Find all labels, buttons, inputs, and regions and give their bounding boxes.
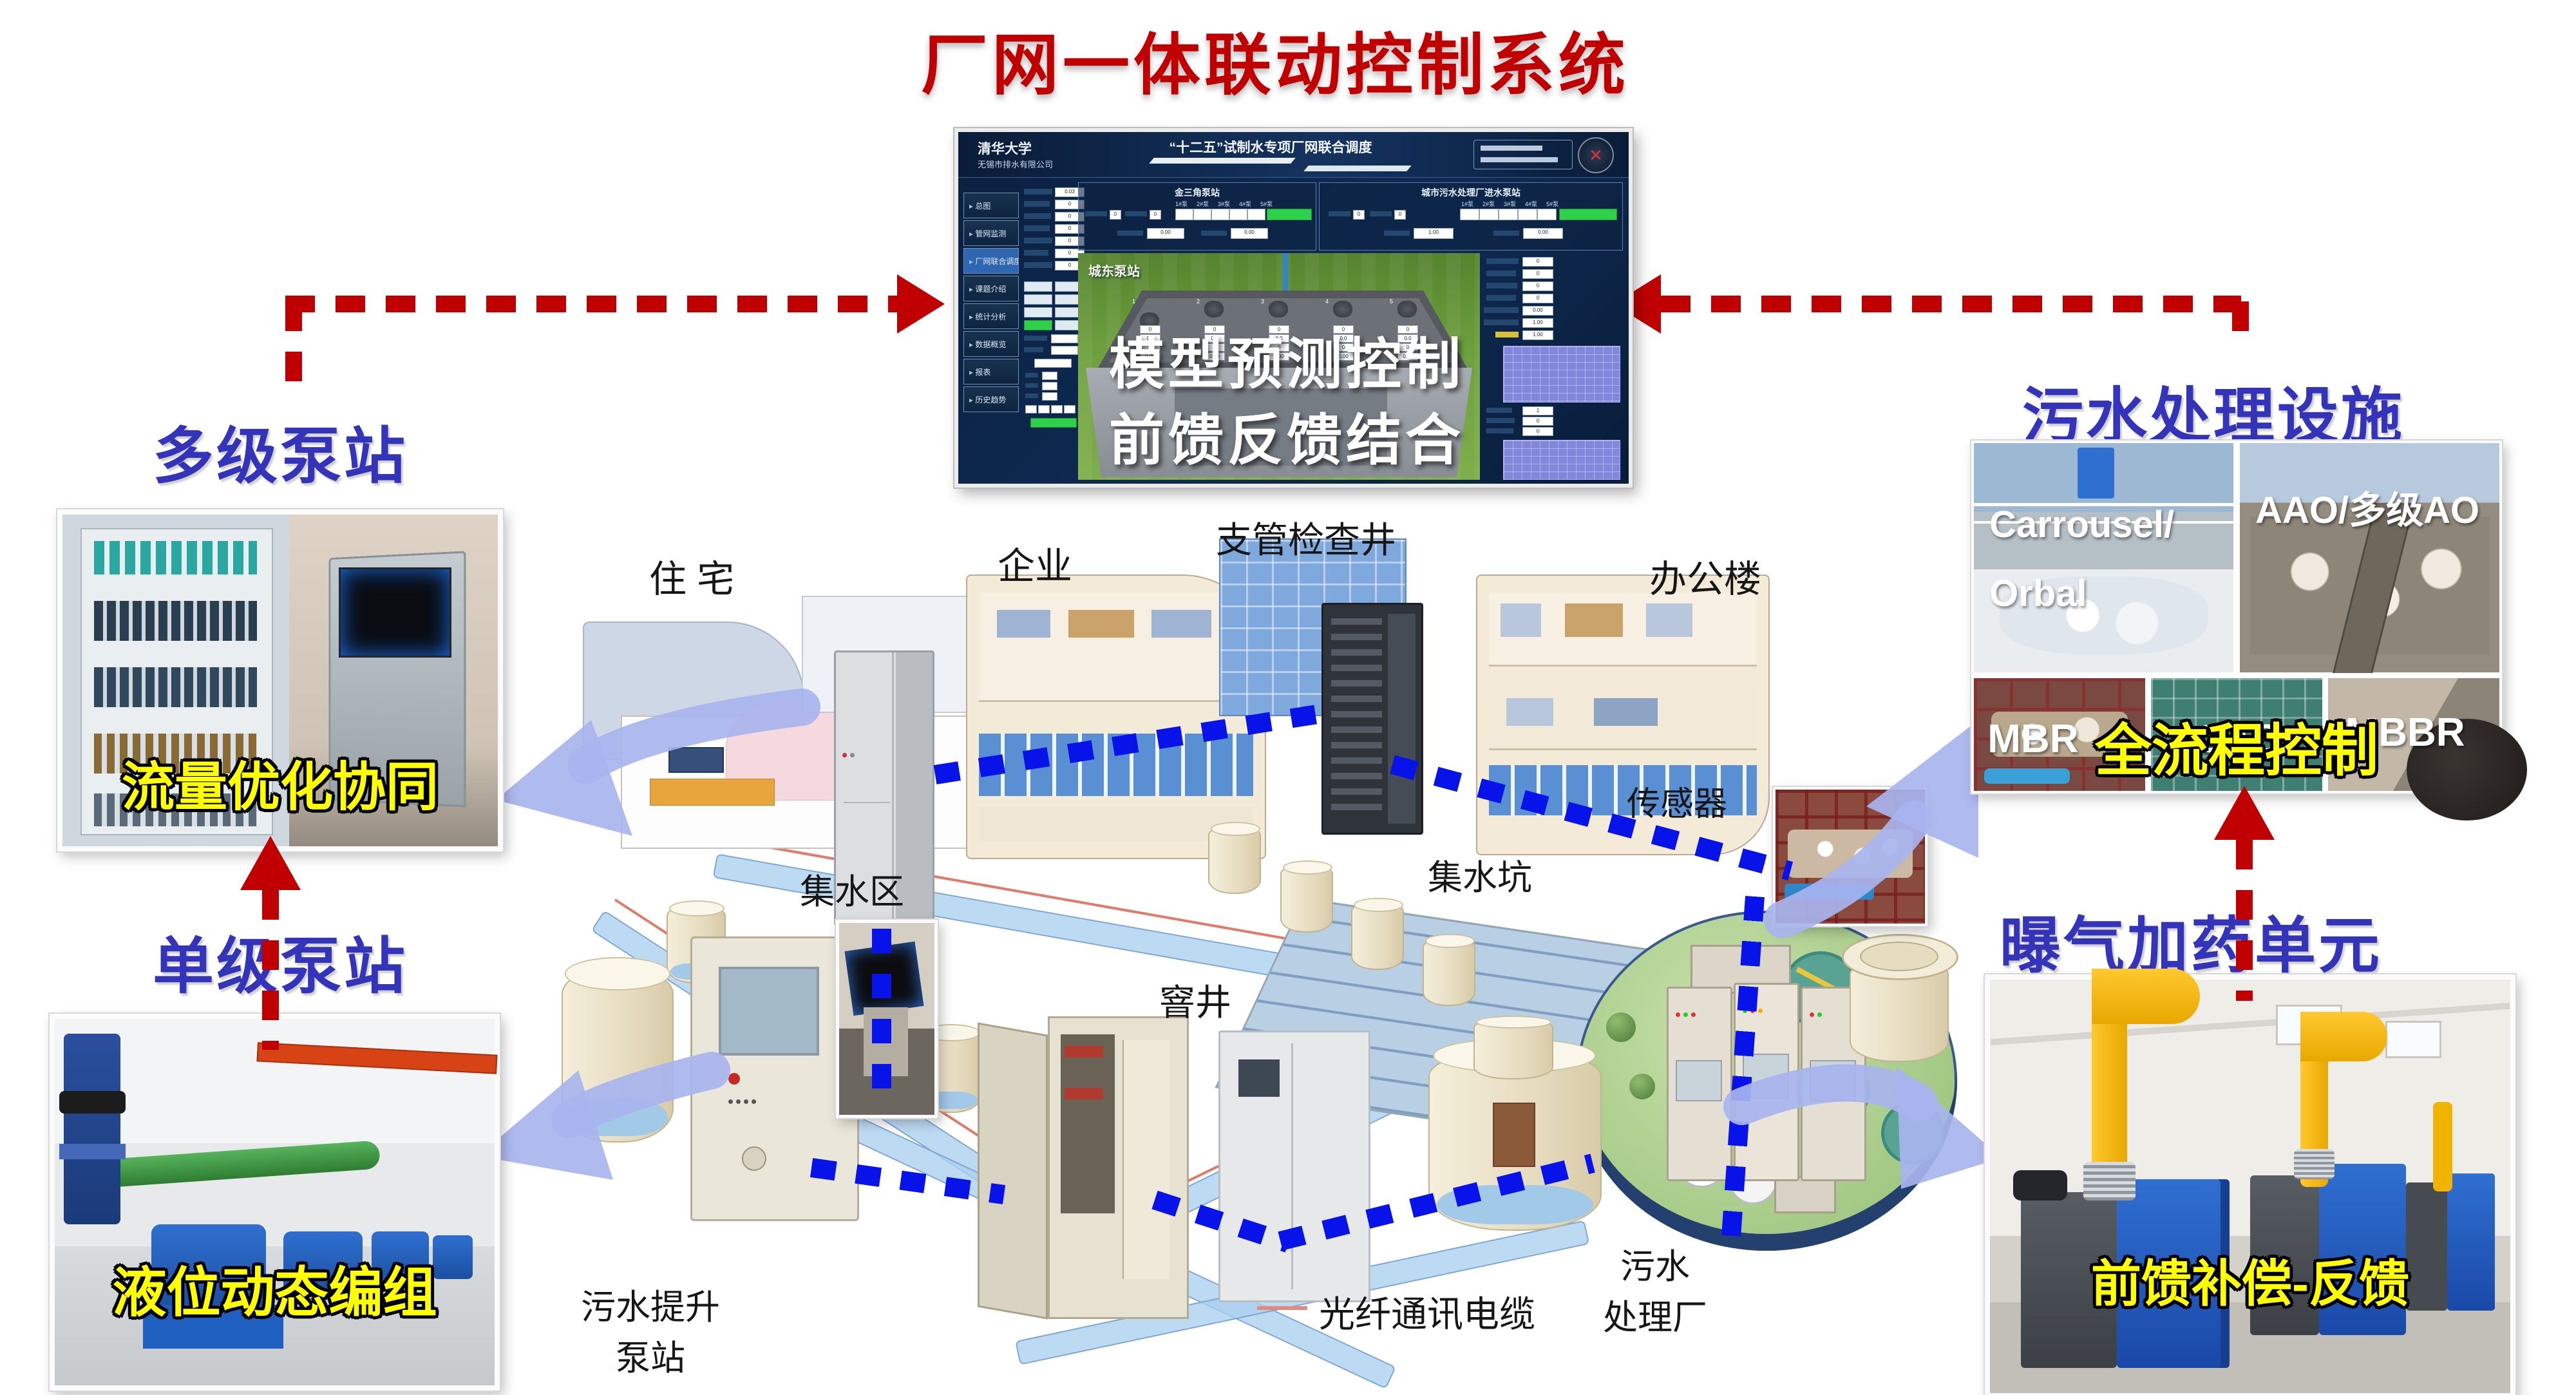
red-arrowhead-up bbox=[240, 836, 301, 890]
red-arrowhead-up bbox=[2214, 786, 2275, 840]
label-lift-station: 污水提升 泵站 bbox=[567, 1278, 734, 1380]
menu-item-data-overview[interactable]: 数据概览 bbox=[963, 331, 1019, 357]
heading-single-pump: 单级泵站 bbox=[113, 917, 448, 1005]
red-dashed-link bbox=[2236, 840, 2253, 1001]
heading-multi-pump: 多级泵站 bbox=[113, 407, 448, 495]
scada-banner: “十二五”试制水专项厂网联合调度 bbox=[1119, 137, 1422, 157]
scada-overlay-line1: 模型预测控制 bbox=[1061, 319, 1512, 399]
red-arrowhead-right bbox=[897, 274, 945, 334]
red-dashed-link bbox=[262, 890, 279, 1050]
map-station-label: 城东泵站 bbox=[1088, 261, 1140, 280]
rtu-cabinet-black bbox=[1321, 603, 1423, 835]
red-dashed-link bbox=[285, 301, 302, 386]
manhole-cylinder bbox=[562, 969, 674, 1143]
label-wwtp: 污水 处理厂 bbox=[1581, 1238, 1729, 1340]
photo-carrousel: Carrousel/ Orbal bbox=[1974, 443, 2233, 672]
trend-chart-2 bbox=[1503, 440, 1620, 480]
panel-wwtp-inlet: 城市污水处理厂进水泵站 1#泵2#泵3#泵4#泵5#泵 0 0 1.00 0.0… bbox=[1319, 182, 1623, 251]
pump-4 bbox=[1333, 301, 1352, 318]
plant-control-cabinets bbox=[1667, 983, 1866, 1182]
scada-window: 清华大学 无锡市排水有限公司 “十二五”试制水专项厂网联合调度 ✕ 总图 管网监… bbox=[954, 128, 1633, 488]
pump-col-headers: 1#泵2#泵3#泵4#泵5#泵 bbox=[1175, 200, 1304, 208]
heading-aeration: 曝气加药单元 bbox=[2000, 897, 2450, 985]
pump-col-headers: 1#泵2#泵3#泵4#泵5#泵 bbox=[1461, 200, 1603, 208]
photo-aao: AAO/多级AO bbox=[2240, 443, 2499, 672]
single-pump-photo: 液位动态编组 bbox=[50, 1014, 500, 1390]
label-catchment: 集水区 bbox=[800, 863, 904, 914]
trend-chart-1 bbox=[1503, 346, 1620, 403]
comm-line bbox=[872, 929, 891, 1097]
red-dashed-link bbox=[285, 296, 898, 312]
manhole-cylinder bbox=[1423, 938, 1475, 1006]
treatment-photo-grid: Carrousel/ Orbal AAO/多级AO MBR CAS MBBR 全… bbox=[1971, 441, 2502, 793]
close-icon[interactable]: ✕ bbox=[1578, 137, 1614, 173]
pump-3 bbox=[1269, 301, 1288, 318]
menu-item-history-trend[interactable]: 历史趋势 bbox=[963, 386, 1019, 412]
menu-item-project-intro[interactable]: 课题介绍 bbox=[963, 276, 1019, 301]
label-residential: 住 宅 bbox=[649, 549, 734, 603]
label-sump-pit: 集水坑 bbox=[1428, 849, 1532, 900]
pump-2 bbox=[1204, 301, 1224, 318]
manhole-riser bbox=[1842, 934, 1955, 1059]
red-dashed-link bbox=[1661, 296, 2241, 312]
scada-overlay-line2: 前馈反馈结合 bbox=[1061, 395, 1512, 475]
caption-single-pump: 液位动态编组 bbox=[55, 1249, 495, 1327]
map-riser-pipe bbox=[1283, 253, 1288, 292]
label-office: 办公楼 bbox=[1649, 549, 1761, 603]
manhole-cylinder bbox=[1280, 864, 1333, 933]
label-fiber-cable: 光纤通讯电缆 bbox=[1319, 1286, 1535, 1338]
banner-decor bbox=[1303, 166, 1412, 171]
caption-multi-pump: 流量优化协同 bbox=[62, 744, 498, 821]
red-dashed-link bbox=[2232, 301, 2249, 349]
slide-canvas: 厂网一体联动控制系统 bbox=[0, 0, 2576, 1395]
label-sensor: 传感器 bbox=[1627, 777, 1727, 825]
scada-session-box bbox=[1473, 140, 1573, 169]
scada-org2: 无锡市排水有限公司 bbox=[978, 158, 1053, 170]
banner-decor bbox=[1149, 158, 1296, 164]
menu-item-overview[interactable]: 总图 bbox=[963, 193, 1019, 218]
menu-item-reports[interactable]: 报表 bbox=[963, 359, 1019, 384]
field-cabinet-white bbox=[1218, 1030, 1370, 1302]
scada-header: 清华大学 无锡市排水有限公司 “十二五”试制水专项厂网联合调度 ✕ bbox=[958, 132, 1629, 178]
pump-5 bbox=[1397, 301, 1417, 318]
menu-item-statistics[interactable]: 统计分析 bbox=[963, 303, 1019, 329]
aeration-photo: 前馈补偿-反馈 bbox=[1985, 974, 2515, 1395]
label-branch-manhole: 支管检查井 bbox=[1216, 511, 1396, 564]
caption-treatment: 全流程控制 bbox=[1995, 705, 2479, 787]
fiber-legend-line bbox=[1257, 1306, 1307, 1310]
label-manhole: 窨井 bbox=[1159, 974, 1231, 1026]
sensor-photo bbox=[1773, 787, 1927, 926]
scada-org1: 清华大学 bbox=[978, 138, 1032, 158]
multi-pump-photo: 流量优化协同 bbox=[57, 509, 503, 851]
page-title: 厂网一体联动控制系统 bbox=[831, 10, 1719, 108]
manhole-cylinder bbox=[1351, 902, 1404, 970]
manhole-cylinder bbox=[1208, 826, 1261, 894]
caption-aeration: 前馈补偿-反馈 bbox=[2000, 1244, 2500, 1316]
menu-item-joint-dispatch[interactable]: 厂网联合调度 bbox=[963, 248, 1019, 274]
label-enterprise: 企业 bbox=[998, 536, 1072, 590]
panel-jinsanjiao: 金三角泵站 1#泵2#泵3#泵4#泵5#泵 0 0 0.00 0.00 bbox=[1078, 182, 1316, 251]
menu-item-network-monitor[interactable]: 管网监测 bbox=[963, 220, 1019, 246]
double-door-cabinet bbox=[978, 1016, 1185, 1315]
